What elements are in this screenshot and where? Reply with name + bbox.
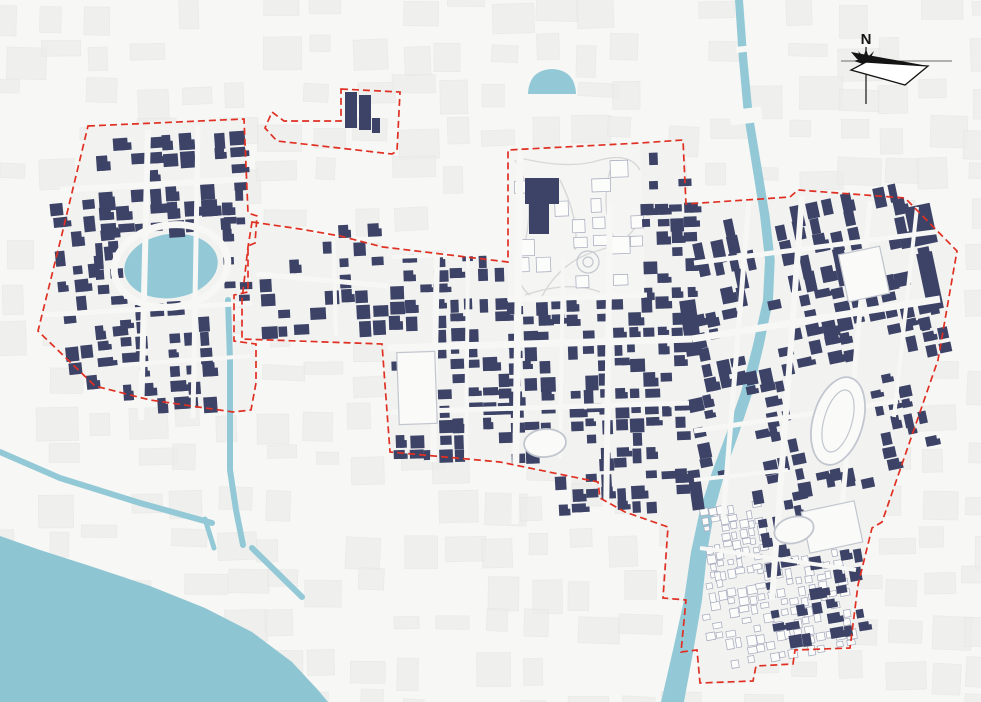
map-layers: [0, 0, 981, 702]
north-label: N: [861, 31, 872, 48]
city-map: N: [0, 0, 981, 702]
map-figure: N: [0, 0, 981, 702]
